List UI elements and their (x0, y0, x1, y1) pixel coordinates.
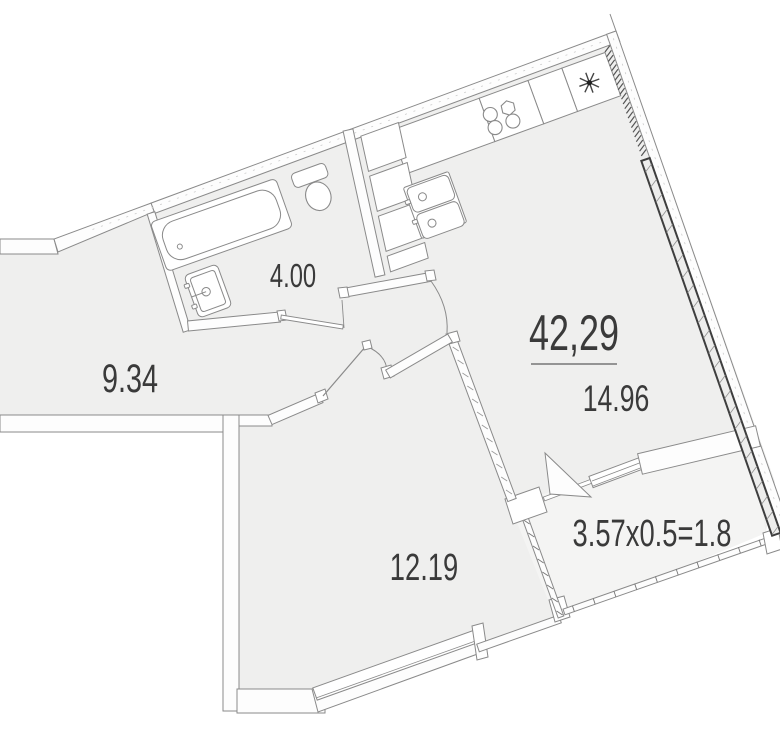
svg-text:14.96: 14.96 (583, 378, 650, 419)
svg-text:3.57x0.5=1.8: 3.57x0.5=1.8 (573, 513, 732, 555)
svg-text:12.19: 12.19 (390, 547, 458, 589)
svg-text:9.34: 9.34 (102, 356, 158, 401)
svg-text:42,29: 42,29 (529, 306, 619, 361)
svg-text:4.00: 4.00 (270, 258, 316, 295)
